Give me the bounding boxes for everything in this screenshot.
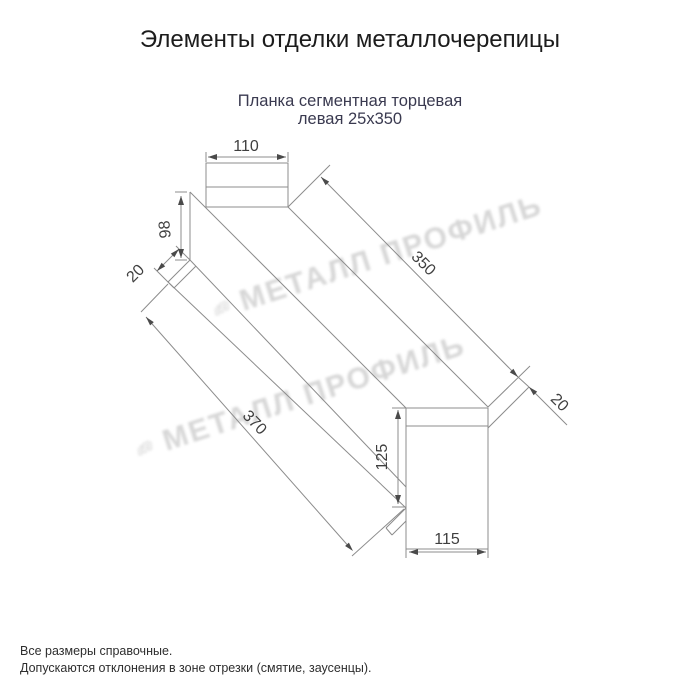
dim-label-370: 370 (239, 407, 270, 438)
arrow-115-left (409, 549, 418, 555)
dim-label-110: 110 (233, 138, 259, 155)
right-end-section (406, 408, 488, 549)
dimension-labels: 110 98 20 350 20 370 125 115 (124, 138, 572, 548)
long-edge-bottom (168, 282, 406, 508)
dim-label-125: 125 (374, 444, 391, 471)
arrow-110-left (208, 154, 217, 160)
footer-note-1: Все размеры справочные. (20, 643, 372, 660)
arrow-98-top (178, 196, 184, 205)
dim-label-115: 115 (434, 531, 460, 548)
dim-20-left-line (154, 246, 190, 282)
dim-125-line (392, 408, 406, 507)
bottom-flap (386, 508, 406, 535)
arrow-115-right (477, 549, 486, 555)
page-title: Элементы отделки металлочерепицы (0, 26, 700, 54)
left-end-section (206, 163, 288, 207)
dim-370-line (141, 284, 404, 556)
profile-outline (168, 163, 530, 549)
product-name-line1: Планка сегментная торцевая (0, 93, 700, 111)
arrow-125-top (395, 410, 401, 419)
long-edge-top-right (288, 207, 488, 407)
footer-note-2: Допускаются отклонения в зоне отрезки (с… (20, 660, 372, 677)
dim-label-350: 350 (408, 248, 439, 279)
drawing-page: Элементы отделки металлочерепицы Планка … (0, 0, 700, 700)
footer-notes: Все размеры справочные. Допускаются откл… (20, 643, 372, 677)
dim-label-98: 98 (156, 220, 174, 239)
product-name-line2: левая 25х350 (0, 111, 700, 129)
dim-350-line (288, 165, 518, 377)
long-edge-back (190, 192, 406, 408)
dim-115-line (406, 549, 488, 558)
dimension-arrows (146, 154, 537, 555)
arrow-110-right (277, 154, 286, 160)
left-fold (168, 260, 196, 288)
product-name: Планка сегментная торцевая левая 25х350 (0, 93, 700, 128)
dimension-lines (141, 152, 567, 558)
dim-label-20-right: 20 (547, 391, 572, 416)
right-fold (488, 366, 530, 428)
dim-label-20-left: 20 (124, 261, 149, 286)
